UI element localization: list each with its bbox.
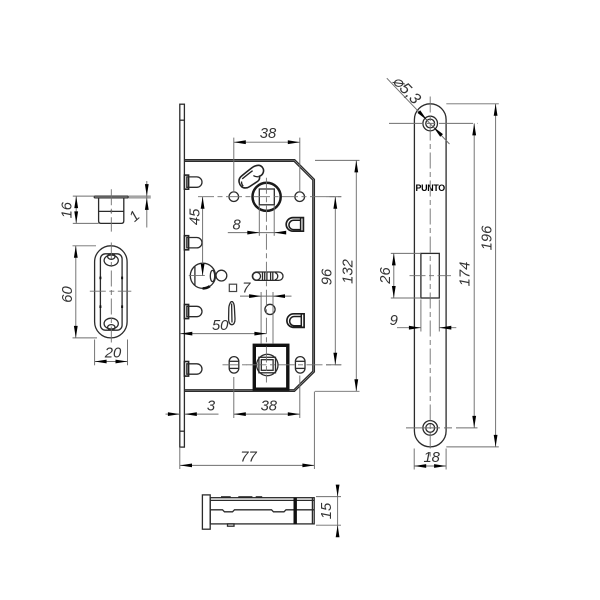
svg-text:26: 26	[378, 267, 394, 285]
svg-text:77: 77	[240, 450, 257, 466]
svg-text:15: 15	[319, 502, 335, 519]
svg-text:45: 45	[187, 208, 203, 225]
svg-text:16: 16	[60, 201, 76, 218]
svg-text:9: 9	[390, 313, 398, 329]
svg-text:18: 18	[423, 450, 440, 466]
svg-text:174: 174	[458, 262, 474, 287]
svg-text:3: 3	[207, 399, 216, 415]
svg-text:38: 38	[261, 399, 278, 415]
svg-text:60: 60	[60, 286, 76, 303]
svg-text:7: 7	[242, 280, 251, 296]
svg-text:132: 132	[340, 258, 356, 283]
svg-text:38: 38	[260, 126, 277, 142]
svg-text:20: 20	[104, 346, 122, 362]
svg-text:50: 50	[212, 318, 229, 334]
svg-text:8: 8	[232, 217, 241, 233]
svg-text:196: 196	[479, 225, 495, 250]
svg-text:96: 96	[320, 268, 336, 285]
